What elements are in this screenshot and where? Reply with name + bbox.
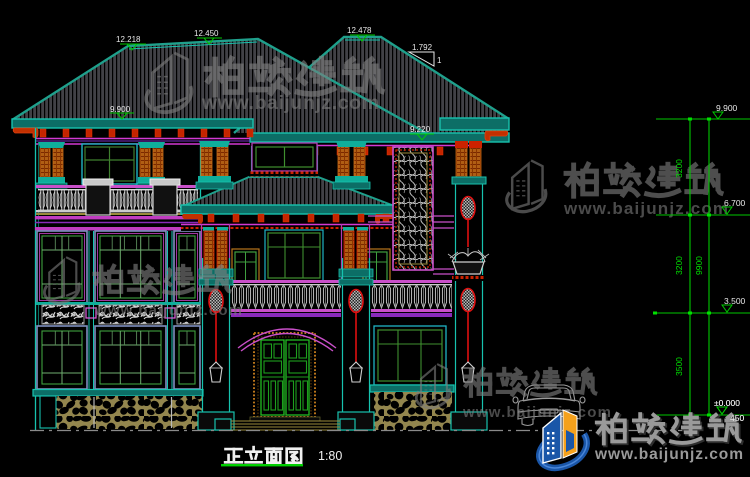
svg-text:3500: 3500	[674, 357, 684, 376]
svg-text:3.500: 3.500	[724, 296, 746, 306]
svg-text:1.792: 1.792	[412, 43, 433, 52]
svg-text:450: 450	[730, 413, 744, 423]
svg-text:12.450: 12.450	[194, 29, 219, 38]
svg-text:12.478: 12.478	[347, 26, 372, 35]
svg-text:www.baijunjz.com: www.baijunjz.com	[201, 92, 379, 114]
svg-text:3200: 3200	[674, 159, 684, 178]
svg-text:9900: 9900	[694, 256, 704, 275]
svg-text:3200: 3200	[674, 256, 684, 275]
svg-text:1: 1	[437, 56, 442, 65]
svg-text:9.900: 9.900	[716, 103, 738, 113]
svg-text:www.baijunjz.com: www.baijunjz.com	[594, 446, 743, 463]
svg-text:6.700: 6.700	[724, 198, 746, 208]
svg-text:12.218: 12.218	[116, 35, 141, 44]
svg-text:www.baijunjz.com: www.baijunjz.com	[94, 302, 242, 319]
svg-text:9.220: 9.220	[410, 125, 431, 134]
svg-text:www.baijunjz.com: www.baijunjz.com	[462, 404, 611, 421]
svg-text:1:80: 1:80	[318, 449, 342, 463]
